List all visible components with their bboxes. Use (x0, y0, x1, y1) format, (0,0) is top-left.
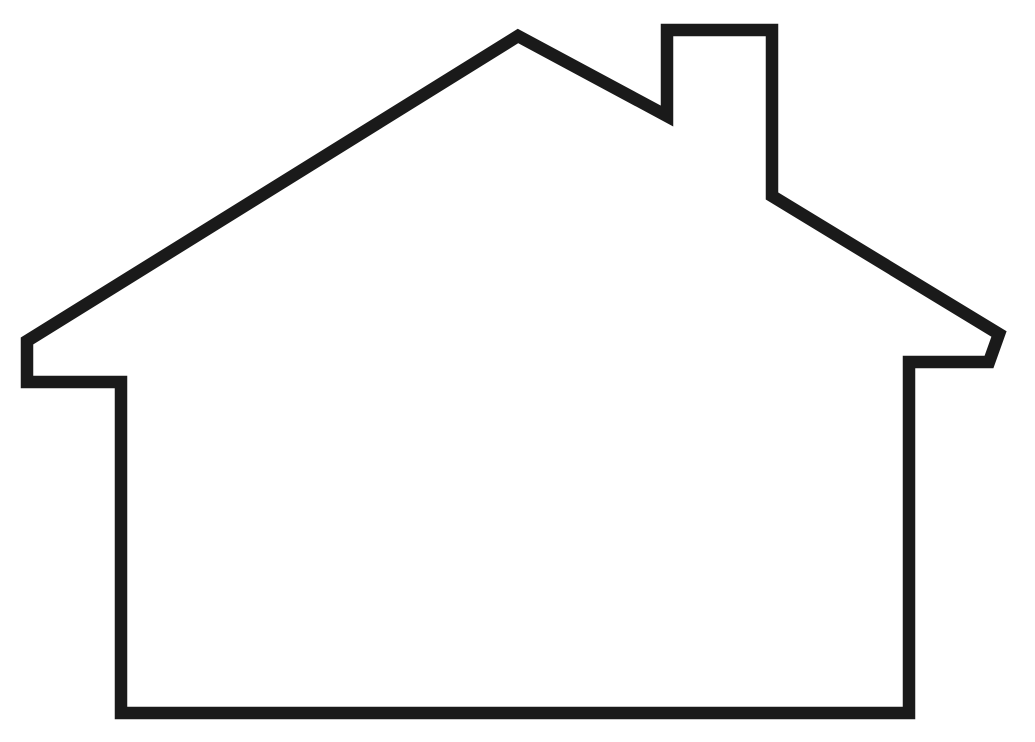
drawing-canvas (0, 0, 1035, 742)
house-outline-drawing (0, 0, 1035, 742)
house-outline-shape (27, 30, 999, 713)
